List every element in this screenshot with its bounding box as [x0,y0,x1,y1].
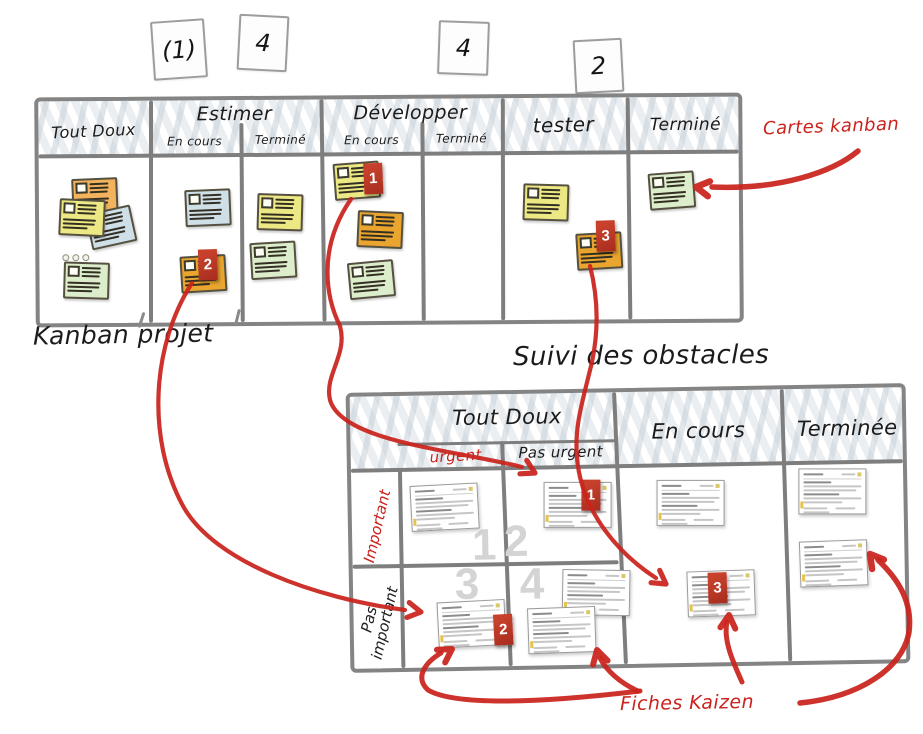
sticky-note-estimer-en-cours [184,188,232,227]
column-header-tester: tester [532,112,594,137]
card-sketch-icon [259,195,298,225]
card-sketch-icon [349,262,390,294]
card-sketch-icon [65,264,104,294]
kaizen-card-footer [693,606,751,616]
column-header-en-cours: En cours [651,418,745,444]
subcolumn-header-termine: Terminé [255,133,306,147]
card-sketch-icon [525,185,564,215]
card-sketch-icon [61,200,100,231]
annotation-cartes-kanban: Cartes kanban [763,114,900,140]
subcolumn-header-urgent: urgent [429,446,482,467]
kaizen-card-footer [549,519,607,527]
kaizen-card-en-cours [657,480,725,526]
subcolumn-header-pas-urgent: Pas urgent [518,442,603,461]
subcolumn-header-en-cours: En cours [344,133,399,147]
board-suivi-obstacles: Tout Doux urgent Pas urgent En cours Ter… [346,383,911,673]
kaizen-card-footer [443,636,501,647]
ellipsis-dots [62,254,89,261]
column-header-estimer: Estimer [197,103,273,126]
card-sketch-icon [359,212,398,243]
board2-title: Suivi des obstacles [513,340,769,372]
column-divider [501,98,505,320]
kaizen-card-header [804,543,862,552]
wip-limit-card: 4 [237,14,290,73]
column-header-developper: Développer [353,101,467,124]
priority-badge: 2 [493,614,514,646]
column-header-tout-doux: Tout Doux [452,404,562,430]
kaizen-card-header [662,484,720,491]
board1-caption: Kanban projet [33,318,214,350]
kanban-sketch-diagram: (1)442 Tout Doux Estimer En cours Termin… [0,0,923,734]
column-header-terminee: Terminée [797,415,898,441]
kaizen-card-header [532,610,590,619]
wip-limit-card: 2 [573,38,625,94]
sticky-note-developper-en-cours [356,210,404,249]
wip-limit-card: (1) [150,18,208,81]
row-label-pas-important: Pas important [354,582,401,661]
priority-badge: 1 [581,480,600,511]
row-label-divider [398,468,405,668]
kaizen-card-header [415,487,473,497]
sticky-note-estimer-termine [257,193,304,231]
card-sketch-icon [650,173,690,205]
sticky-note-tout-doux [58,198,106,237]
kaizen-card-footer [805,576,863,586]
kaizen-card-footer [803,505,861,513]
board-kanban-projet: Tout Doux Estimer En cours Terminé Dével… [34,93,744,328]
priority-badge: 2 [198,249,218,281]
subcolumn-header-en-cours: En cours [167,134,222,148]
kaizen-card-header [803,472,861,479]
card-sketch-icon [251,243,291,274]
subcolumn-header-termine: Terminé [436,131,487,145]
kaizen-card-header [442,603,500,613]
priority-badge: 3 [596,220,616,252]
kaizen-card-footer [416,520,474,531]
column-header-tout-doux: Tout Doux [51,120,136,143]
kaizen-card-terminee [799,539,869,587]
sticky-note-tester [522,183,569,221]
kaizen-card-header [567,573,625,581]
sticky-note-developper-en-cours [347,259,396,300]
kaizen-card-terminee [798,468,866,514]
priority-badge: 3 [708,572,728,604]
kaizen-card-footer [533,643,591,653]
row-label-important: Important [362,488,394,564]
card-sketch-icon [186,191,225,222]
column-divider [149,101,153,323]
kaizen-card-footer [662,517,720,525]
kaizen-card-pas-urgent-pas-important [527,606,597,654]
kaizen-card-pas-urgent-important [544,482,612,528]
quadrant-number: 4 [519,559,544,609]
sticky-note-estimer-termine [249,240,297,280]
sticky-note-tout-doux [63,261,110,299]
kaizen-card-urgent-important [409,482,479,531]
sticky-note-termine [648,170,697,210]
priority-badge: 1 [363,163,383,195]
column-header-termine: Terminé [650,115,721,135]
annotation-fiches-kaizen: Fiches Kaizen [620,691,754,715]
wip-limit-card: 4 [437,20,490,76]
